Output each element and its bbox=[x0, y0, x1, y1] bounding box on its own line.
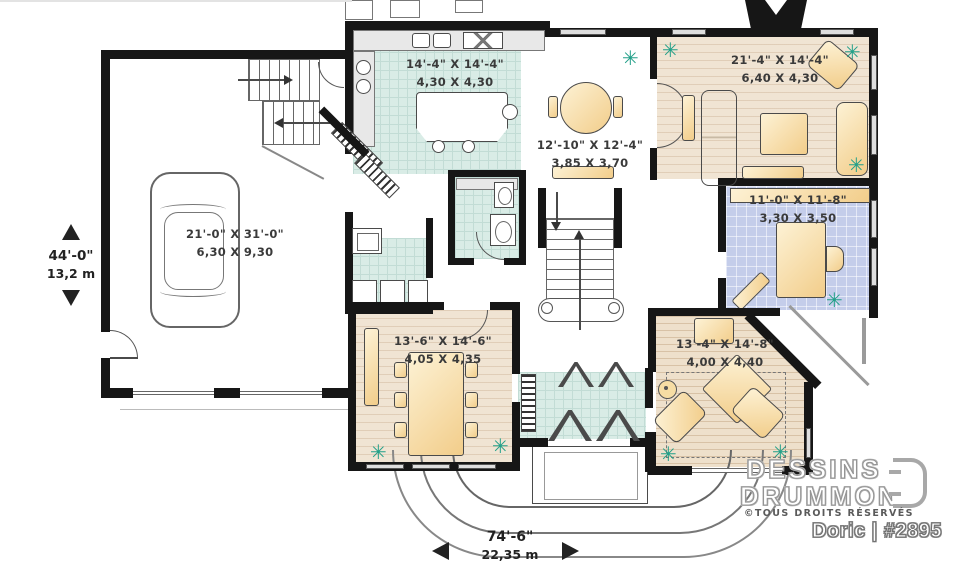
dimension-arrow-up bbox=[62, 224, 80, 240]
dimension-arrow-right bbox=[562, 542, 579, 560]
exterior-landing bbox=[390, 0, 420, 18]
driveway-apron-line bbox=[120, 409, 350, 410]
living-label: 21'-4" X 14'-4" 6,40 X 4,30 bbox=[690, 52, 870, 88]
wall bbox=[512, 402, 520, 470]
breakfast-dim-metric: 3,85 X 3,70 bbox=[510, 155, 670, 173]
dining-chair bbox=[394, 422, 407, 438]
dimension-arrow-down bbox=[62, 290, 80, 306]
breakfast-dim-imperial: 12'-10" X 12'-4" bbox=[510, 137, 670, 155]
dining-chair bbox=[465, 392, 478, 408]
window-marker bbox=[871, 248, 877, 286]
stair-arrow-head bbox=[551, 222, 561, 231]
floor-plan-canvas: ✳ ✳ ✳ ✳ ✳ ✳ ✳ ✳ ✳ 21'-0" X 31'-0" 6,30 X… bbox=[0, 0, 960, 569]
wall bbox=[512, 438, 548, 447]
overall-depth-metric: 13,2 m bbox=[34, 266, 108, 281]
breakfast-table bbox=[560, 82, 612, 134]
wall bbox=[718, 178, 878, 186]
laundry-sink bbox=[352, 228, 382, 254]
coffee-table bbox=[760, 113, 808, 155]
plan-title: Doric | #2895 bbox=[812, 520, 957, 543]
breakfast-chair bbox=[548, 96, 558, 118]
dining-chair bbox=[465, 422, 478, 438]
overall-depth-imperial: 44'-0" bbox=[34, 248, 108, 264]
closet-hangers bbox=[521, 374, 536, 432]
window-marker bbox=[672, 29, 706, 35]
door-swing bbox=[110, 330, 138, 358]
wall-oven bbox=[356, 60, 371, 75]
brand-d-mark-notch bbox=[889, 470, 901, 496]
plant-icon: ✳ bbox=[662, 40, 679, 60]
copyright-text: ©TOUS DROITS RÉSERVÉS bbox=[744, 508, 934, 519]
plant-icon: ✳ bbox=[826, 290, 843, 310]
office-label: 11'-0" X 11'-8" 3,30 X 3,50 bbox=[728, 192, 868, 228]
front-stoop-inner bbox=[544, 452, 638, 500]
wall bbox=[448, 170, 455, 265]
family-dim-imperial: 13'-4" X 14'-8" bbox=[640, 336, 810, 354]
wall bbox=[519, 170, 526, 265]
wall-oven bbox=[356, 79, 371, 94]
garage-dim-imperial: 21'-0" X 31'-0" bbox=[155, 226, 315, 244]
wall bbox=[538, 188, 546, 248]
window-marker bbox=[871, 200, 877, 238]
window-marker bbox=[820, 29, 854, 35]
wall bbox=[648, 466, 692, 475]
console-table bbox=[742, 166, 804, 179]
brand-line1: DESSINS bbox=[740, 456, 888, 483]
sofa bbox=[701, 90, 737, 186]
powder-sink bbox=[494, 182, 514, 208]
wall bbox=[645, 368, 653, 408]
overall-width-imperial: 74'-6" bbox=[455, 529, 565, 545]
dimension-arrow-left bbox=[432, 542, 449, 560]
garage-door bbox=[240, 391, 322, 395]
stair-arrow bbox=[282, 122, 330, 124]
side-table bbox=[682, 95, 695, 141]
wall bbox=[101, 50, 353, 59]
kitchen-dim-imperial: 14'-4" X 14'-4" bbox=[370, 56, 540, 74]
newel-post bbox=[541, 302, 553, 314]
stair-rail bbox=[262, 145, 325, 180]
exterior-landing bbox=[345, 0, 373, 20]
wall bbox=[101, 388, 133, 398]
desk bbox=[776, 222, 826, 298]
wall bbox=[650, 34, 657, 79]
garage-dim-metric: 6,30 X 9,30 bbox=[155, 244, 315, 262]
brand-line2: DRUMMOND bbox=[740, 483, 888, 510]
plant-icon: ✳ bbox=[492, 436, 509, 456]
newel-post bbox=[608, 302, 620, 314]
stair-arrow-head bbox=[574, 230, 584, 239]
window-marker bbox=[560, 29, 606, 35]
living-dim-metric: 6,40 X 4,30 bbox=[690, 70, 870, 88]
wall bbox=[345, 21, 550, 30]
stair-arrow bbox=[579, 238, 581, 330]
stove bbox=[463, 32, 503, 49]
floor-lamp bbox=[658, 380, 677, 399]
wall bbox=[101, 50, 110, 332]
garage-door bbox=[133, 391, 214, 395]
garage-label: 21'-0" X 31'-0" 6,30 X 9,30 bbox=[155, 226, 315, 262]
family-dim-metric: 4,00 X 4,40 bbox=[640, 354, 810, 372]
island-stool bbox=[432, 140, 445, 153]
frame-line bbox=[0, 0, 352, 2]
window-marker bbox=[871, 115, 877, 155]
door-leaf bbox=[110, 357, 138, 359]
dining-dim-imperial: 13'-6" X 14'-6" bbox=[368, 333, 518, 351]
wall bbox=[718, 186, 726, 252]
wall bbox=[614, 188, 622, 248]
dining-dim-metric: 4,05 X 4,35 bbox=[368, 351, 518, 369]
office-dim-imperial: 11'-0" X 11'-8" bbox=[728, 192, 868, 210]
stair-arrow bbox=[556, 192, 558, 224]
office-dim-metric: 3,30 X 3,50 bbox=[728, 210, 868, 228]
dining-label: 13'-6" X 14'-6" 4,05 X 4,35 bbox=[368, 333, 518, 369]
office-chair bbox=[826, 246, 844, 272]
overall-width-metric: 22,35 m bbox=[455, 547, 565, 562]
kitchen-sink bbox=[412, 33, 430, 48]
plant-icon: ✳ bbox=[660, 444, 677, 464]
wall bbox=[352, 302, 444, 310]
door-swing bbox=[318, 62, 344, 88]
car-rear-window bbox=[160, 286, 226, 297]
window-marker bbox=[366, 464, 404, 469]
wall bbox=[504, 258, 526, 265]
kitchen-label: 14'-4" X 14'-4" 4,30 X 4,30 bbox=[370, 56, 540, 92]
stair-arrow-head bbox=[284, 75, 293, 85]
living-dim-imperial: 21'-4" X 14'-4" bbox=[690, 52, 870, 70]
window-marker bbox=[871, 55, 877, 90]
island-sink bbox=[502, 104, 518, 120]
family-label: 13'-4" X 14'-8" 4,00 X 4,40 bbox=[640, 336, 810, 372]
breakfast-chair bbox=[613, 96, 623, 118]
stair-arrow bbox=[238, 79, 286, 81]
plant-icon: ✳ bbox=[848, 155, 865, 175]
kitchen-dim-metric: 4,30 X 4,30 bbox=[370, 74, 540, 92]
window-marker bbox=[458, 464, 496, 469]
wall bbox=[348, 302, 356, 470]
exterior-landing bbox=[455, 0, 483, 13]
wall bbox=[648, 308, 752, 316]
wall bbox=[448, 258, 474, 265]
kitchen-sink bbox=[433, 33, 451, 48]
stair-arrow-head bbox=[274, 118, 283, 128]
island-stool bbox=[462, 140, 475, 153]
veranda-edge bbox=[862, 318, 866, 364]
plant-icon: ✳ bbox=[622, 48, 639, 68]
brand-logo: DESSINS DRUMMOND bbox=[740, 456, 888, 509]
window-marker bbox=[412, 464, 450, 469]
kitchen-island bbox=[416, 92, 508, 142]
breakfast-label: 12'-10" X 12'-4" 3,85 X 3,70 bbox=[510, 137, 670, 173]
car-windshield bbox=[160, 204, 226, 215]
wall bbox=[214, 388, 240, 398]
dining-chair bbox=[394, 392, 407, 408]
plant-icon: ✳ bbox=[370, 442, 387, 462]
wall bbox=[426, 218, 433, 278]
